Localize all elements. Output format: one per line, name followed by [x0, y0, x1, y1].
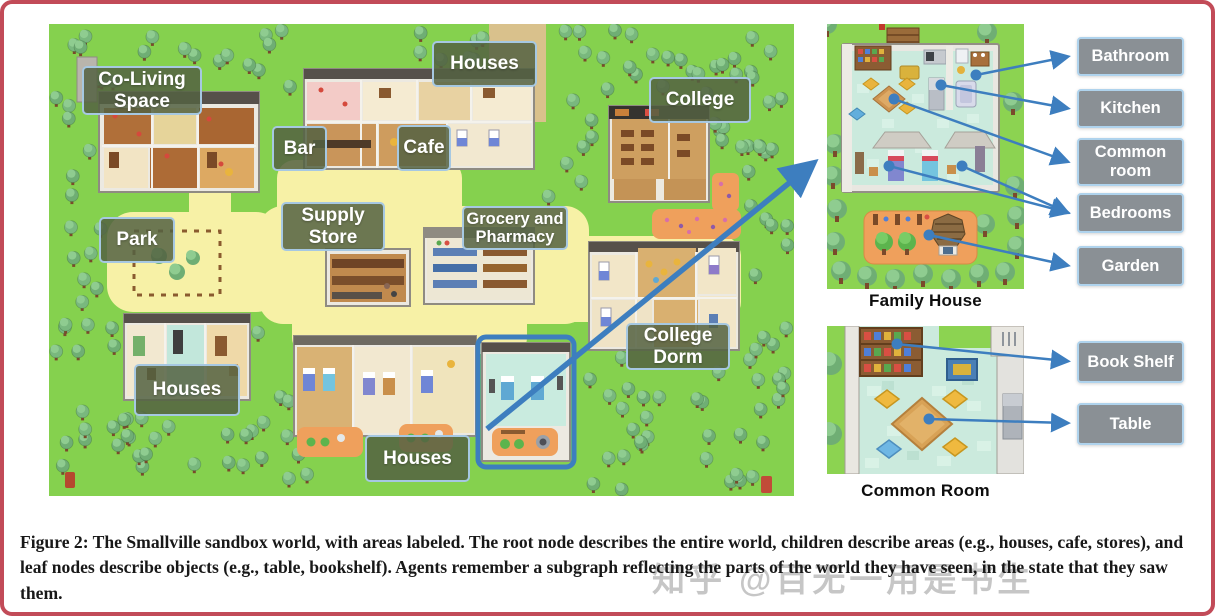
map-label-cafe: Cafe	[397, 125, 451, 171]
object-label-table: Table	[1077, 403, 1184, 445]
map-label-houses-bottom-left: Houses	[134, 364, 240, 416]
building-supply-store	[326, 249, 410, 306]
map-label-college: College	[649, 77, 751, 123]
object-label-book-shelf: Book Shelf	[1077, 341, 1184, 383]
building-houses-bottom-center	[294, 336, 476, 436]
common-room-caption: Common Room	[827, 481, 1024, 501]
mailbox-right	[761, 476, 772, 493]
map-label-houses-bottom-center: Houses	[365, 435, 470, 482]
smallville-map: Co-Living Space Houses College Bar Cafe …	[49, 24, 794, 496]
figure-caption: Figure 2: The Smallville sandbox world, …	[20, 530, 1204, 606]
family-house-image	[827, 24, 1024, 289]
object-label-garden: Garden	[1077, 246, 1184, 286]
object-label-common-room: Common room	[1077, 138, 1184, 186]
mailbox-left	[65, 472, 75, 488]
map-label-park: Park	[99, 217, 175, 263]
figure-frame: Co-Living Space Houses College Bar Cafe …	[0, 0, 1215, 616]
family-house-caption: Family House	[827, 291, 1024, 311]
object-label-bathroom: Bathroom	[1077, 37, 1184, 76]
object-label-kitchen: Kitchen	[1077, 89, 1184, 128]
map-label-grocery-pharmacy: Grocery and Pharmacy	[462, 206, 568, 250]
common-room-image	[827, 326, 1024, 474]
map-label-college-dorm: College Dorm	[626, 323, 730, 370]
map-label-bar: Bar	[272, 126, 327, 171]
building-family-house-highlighted	[482, 343, 570, 461]
map-label-houses-top: Houses	[432, 41, 537, 87]
map-label-co-living-space: Co-Living Space	[82, 66, 202, 115]
map-label-supply-store: Supply Store	[281, 202, 385, 251]
object-label-bedrooms: Bedrooms	[1077, 193, 1184, 233]
